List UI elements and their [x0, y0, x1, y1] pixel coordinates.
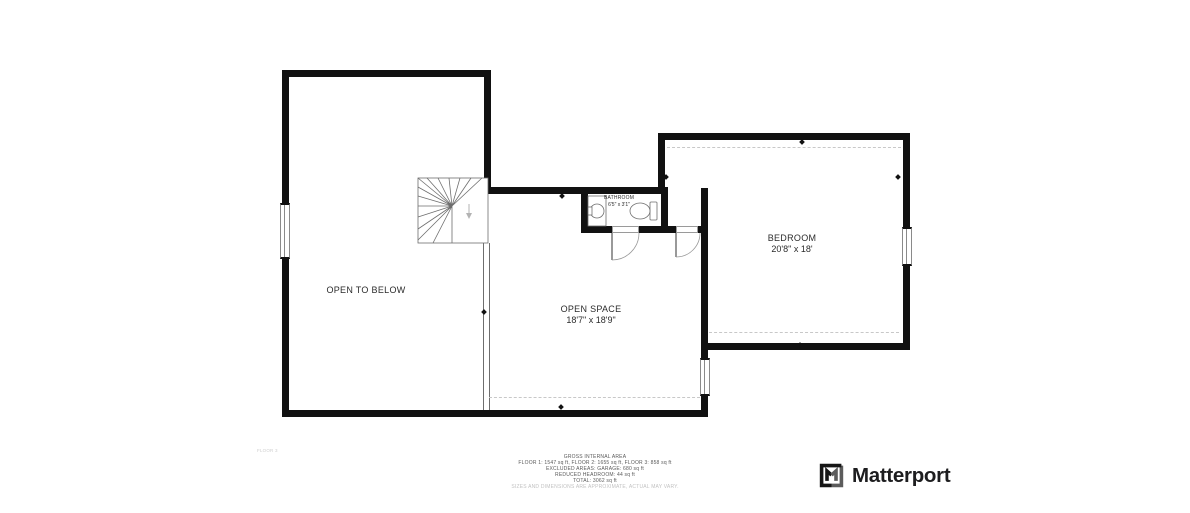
wall-marker	[558, 404, 564, 410]
room-dimensions: 6'5" x 3'1"	[584, 202, 654, 209]
wall-marker	[559, 193, 565, 199]
wall	[282, 410, 708, 417]
wall-marker	[799, 139, 805, 145]
reduced-headroom-line	[489, 397, 700, 398]
floor-plan: OPEN TO BELOW OPEN SPACE 18'7" x 18'9" B…	[0, 0, 1190, 513]
wall	[484, 70, 491, 194]
room-name: BEDROOM	[722, 233, 862, 244]
room-label-open-to-below: OPEN TO BELOW	[296, 285, 436, 296]
matterport-logo: Matterport	[818, 462, 950, 489]
wall	[658, 133, 910, 140]
window	[902, 227, 912, 266]
reduced-headroom-line	[667, 147, 901, 148]
door-swing	[612, 233, 639, 260]
wall	[701, 188, 708, 358]
stair-direction-arrow-icon	[466, 204, 472, 219]
wall	[903, 133, 910, 227]
room-label-bedroom: BEDROOM 20'8" x 18'	[722, 233, 862, 255]
matterport-logo-icon	[818, 462, 845, 489]
wall	[701, 343, 910, 350]
room-label-open-space: OPEN SPACE 18'7" x 18'9"	[521, 304, 661, 326]
room-name: OPEN TO BELOW	[296, 285, 436, 296]
brand-name: Matterport	[852, 464, 950, 488]
wall	[658, 133, 665, 194]
area-summary-disclaimer: SIZES AND DIMENSIONS ARE APPROXIMATE, AC…	[445, 485, 745, 491]
reduced-headroom-line	[709, 332, 899, 333]
wall-marker	[895, 174, 901, 180]
room-label-bathroom: BATHROOM 6'5" x 3'1"	[584, 195, 654, 208]
room-name: OPEN SPACE	[521, 304, 661, 315]
door-frame	[676, 226, 698, 233]
wall	[581, 226, 612, 233]
floor-label: FLOOR 3	[257, 448, 278, 453]
wall	[639, 226, 676, 233]
wall	[282, 255, 289, 417]
wall	[484, 187, 668, 194]
room-dimensions: 18'7" x 18'9"	[521, 315, 661, 326]
staircase	[418, 178, 488, 243]
wall	[282, 70, 289, 203]
door-swing	[676, 233, 700, 257]
door-frame	[612, 226, 639, 233]
window	[700, 358, 710, 396]
wall	[903, 262, 910, 350]
railing-divider	[483, 243, 490, 410]
area-summary: GROSS INTERNAL AREA FLOOR 1: 1547 sq ft,…	[445, 455, 745, 490]
room-dimensions: 20'8" x 18'	[722, 244, 862, 255]
window	[280, 203, 290, 259]
wall	[282, 70, 491, 77]
